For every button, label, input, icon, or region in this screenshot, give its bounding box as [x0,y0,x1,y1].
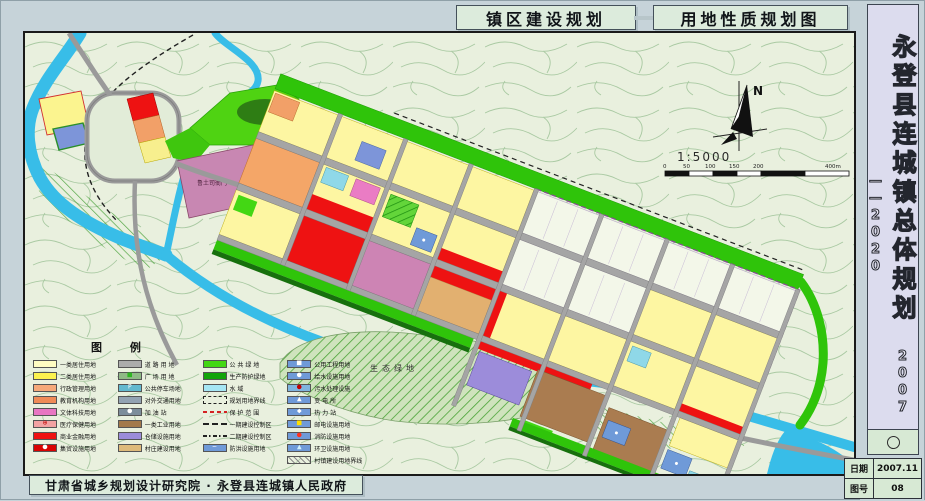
legend-item: 村镇建设用地界线 [287,456,363,464]
legend-label: 一类工业用地 [145,420,181,429]
date-label: 日期 [845,459,874,478]
legend-swatch: ◆ [287,408,311,416]
legend-column: 道 路 用 地■广 场 用 地P公共停车场地对外交通用地●加 油 站一类工业用地… [118,360,194,464]
legend-swatch [33,432,57,440]
legend-item: ●污水处理设施 [287,384,363,392]
legend-swatch: ■ [287,360,311,368]
legend-item: ◆热 力 站 [287,408,363,416]
legend-swatch: ● [287,384,311,392]
map-legend: 图 例 一类居住用地二类居住用地行政管理用地教育机构用地文体科技用地⊕医疗保健用… [33,339,363,464]
legend-item: 一类工业用地 [118,420,194,428]
svg-text:200: 200 [753,164,764,170]
legend-title: 图 例 [91,339,363,355]
legend-symbol-icon: ● [297,385,302,391]
legend-swatch: ● [118,408,142,416]
legend-label: 教育机构用地 [60,396,96,405]
svg-text:150: 150 [729,164,740,170]
legend-label: 环卫设施用地 [314,444,350,453]
sheet-title-right: 用地性质规划图 [653,5,848,30]
legend-symbol-icon: ▲ [297,445,302,451]
legend-item: ●给水设施用地 [287,372,363,380]
svg-text:400m: 400m [825,164,841,170]
legend-label: 规划用地界线 [230,396,266,405]
legend-label: 公 共 绿 地 [230,360,260,369]
sheet-number-label: 图号 [845,479,874,498]
legend-label: 医疗保健用地 [60,420,96,429]
sidebar-seal-box [867,429,919,455]
sheet-canvas: 镇区建设规划 用地性质规划图 [0,0,925,500]
legend-label: 道 路 用 地 [145,360,175,369]
legend-item: 保 护 范 围 [203,408,279,416]
legend-label: 对外交通用地 [145,396,181,405]
legend-swatch: ● [287,372,311,380]
legend-swatch: ⊕ [33,420,57,428]
legend-label: 公用工程用地 [314,360,350,369]
legend-columns: 一类居住用地二类居住用地行政管理用地教育机构用地文体科技用地⊕医疗保健用地商业金… [33,360,363,464]
sheet-number-row: 图号 08 [845,478,921,498]
legend-swatch [118,432,142,440]
legend-label: 给水设施用地 [314,372,350,381]
legend-item: ⊕医疗保健用地 [33,420,109,428]
legend-swatch [203,372,227,380]
legend-item: 村庄建设用地 [118,444,194,452]
legend-label: 村庄建设用地 [145,444,181,453]
legend-symbol-icon: ▲ [297,397,302,403]
sidebar-title-text: 永登县连城镇总体规划 2007——2020 [866,19,920,431]
legend-swatch [203,384,227,392]
legend-swatch [118,396,142,404]
legend-label: 防洪设施用地 [230,444,266,453]
legend-label: 二期建设控制区 [230,432,272,441]
legend-swatch [33,384,57,392]
legend-label: 仓储设施用地 [145,432,181,441]
legend-symbol-icon: ● [127,409,132,415]
legend-item: ▲环卫设施用地 [287,444,363,452]
svg-text:100: 100 [705,164,716,170]
legend-item: ●消防设施用地 [287,432,363,440]
legend-item: 商业金融用地 [33,432,109,440]
legend-swatch [33,396,57,404]
legend-column: 公 共 绿 地生产防护绿地水 域规划用地界线保 护 范 围一期建设控制区二期建设… [203,360,279,464]
legend-label: 一类居住用地 [60,360,96,369]
legend-symbol-icon: ● [42,445,47,451]
legend-item: ●加 油 站 [118,408,194,416]
sidebar: 永登县连城镇总体规划 2007——2020 日期 2007.11 图号 08 [860,1,924,501]
legend-item: ●集贸设施用地 [33,444,109,452]
legend-item: 对外交通用地 [118,396,194,404]
legend-swatch [203,423,227,425]
legend-swatch [203,435,227,437]
legend-item: ■邮电设施用地 [287,420,363,428]
legend-swatch: ▲ [287,396,311,404]
svg-text:0: 0 [663,164,667,170]
legend-item: 公 共 绿 地 [203,360,279,368]
legend-label: 热 力 站 [314,408,336,417]
date-row: 日期 2007.11 [845,459,921,478]
title-connector [634,16,653,20]
legend-symbol-icon: P [128,385,132,391]
legend-label: 行政管理用地 [60,384,96,393]
legend-label: 商业金融用地 [60,432,96,441]
legend-symbol-icon: ● [297,373,302,379]
legend-label: 广 场 用 地 [145,372,175,381]
credit-box: 甘肃省城乡规划设计研究院 · 永登县连城镇人民政府 [29,475,363,495]
plan-title: 永登县连城镇总体规划 [888,34,916,324]
loop-road-area [87,93,179,181]
legend-item: ▲变 电 所 [287,396,363,404]
legend-item: ■广 场 用 地 [118,372,194,380]
sheet-title-left: 镇区建设规划 [456,5,636,30]
legend-symbol-icon: ◆ [297,409,302,415]
legend-symbol-icon: ■ [296,421,302,427]
legend-item: 教育机构用地 [33,396,109,404]
legend-label: 变 电 所 [314,396,336,405]
sheet-number-value: 08 [874,479,921,498]
legend-swatch [203,396,227,404]
legend-label: 污水处理设施 [314,384,350,393]
svg-text:50: 50 [683,164,690,170]
sidebar-title-panel: 永登县连城镇总体规划 2007——2020 [867,4,919,432]
legend-item: 行政管理用地 [33,384,109,392]
legend-swatch: ● [287,432,311,440]
legend-item: ~防洪设施用地 [203,444,279,452]
legend-column: 一类居住用地二类居住用地行政管理用地教育机构用地文体科技用地⊕医疗保健用地商业金… [33,360,109,464]
legend-item: 规划用地界线 [203,396,279,404]
legend-column: ■公用工程用地●给水设施用地●污水处理设施▲变 电 所◆热 力 站■邮电设施用地… [287,360,363,464]
legend-label: 集贸设施用地 [60,444,96,453]
legend-item: 一期建设控制区 [203,420,279,428]
legend-swatch [33,360,57,368]
legend-label: 消防设施用地 [314,432,350,441]
legend-swatch [118,420,142,428]
legend-item: 二类居住用地 [33,372,109,380]
legend-item: 二期建设控制区 [203,432,279,440]
legend-swatch [203,411,227,413]
legend-swatch [287,456,311,464]
legend-swatch: P [118,384,142,392]
north-label: N [753,84,763,98]
eco-zone-label: 生态绿地 [370,363,418,373]
legend-item: 文体科技用地 [33,408,109,416]
legend-label: 二类居住用地 [60,372,96,381]
legend-item: 仓储设施用地 [118,432,194,440]
legend-label: 邮电设施用地 [314,420,350,429]
legend-label: 保 护 范 围 [230,408,260,417]
legend-item: P公共停车场地 [118,384,194,392]
map-frame: 生态绿地 [23,31,856,476]
legend-item: ■公用工程用地 [287,360,363,368]
legend-symbol-icon: ⊕ [42,421,47,427]
legend-label: 生产防护绿地 [230,372,266,381]
legend-item: 水 域 [203,384,279,392]
legend-swatch: ■ [287,420,311,428]
legend-swatch: ● [33,444,57,452]
title-block-table: 日期 2007.11 图号 08 [844,458,922,499]
legend-swatch: ~ [203,444,227,452]
legend-item: 生产防护绿地 [203,372,279,380]
legend-swatch [203,360,227,368]
scale-text: 1:5000 [677,150,731,164]
seal-icon [887,436,900,449]
legend-swatch [118,360,142,368]
legend-label: 公共停车场地 [145,384,181,393]
legend-swatch: ■ [118,372,142,380]
legend-symbol-icon: ● [297,433,302,439]
legend-label: 水 域 [230,384,244,393]
legend-label: 一期建设控制区 [230,420,272,429]
legend-label: 文体科技用地 [60,408,96,417]
legend-symbol-icon: ~ [212,445,217,451]
legend-item: 道 路 用 地 [118,360,194,368]
legend-label: 村镇建设用地界线 [314,456,362,465]
legend-label: 加 油 站 [145,408,167,417]
legend-symbol-icon: ■ [127,373,133,379]
legend-swatch [33,408,57,416]
legend-swatch: ▲ [287,444,311,452]
legend-swatch [118,444,142,452]
legend-symbol-icon: ■ [296,361,302,367]
legend-item: 一类居住用地 [33,360,109,368]
legend-swatch [33,372,57,380]
date-value: 2007.11 [874,459,921,478]
